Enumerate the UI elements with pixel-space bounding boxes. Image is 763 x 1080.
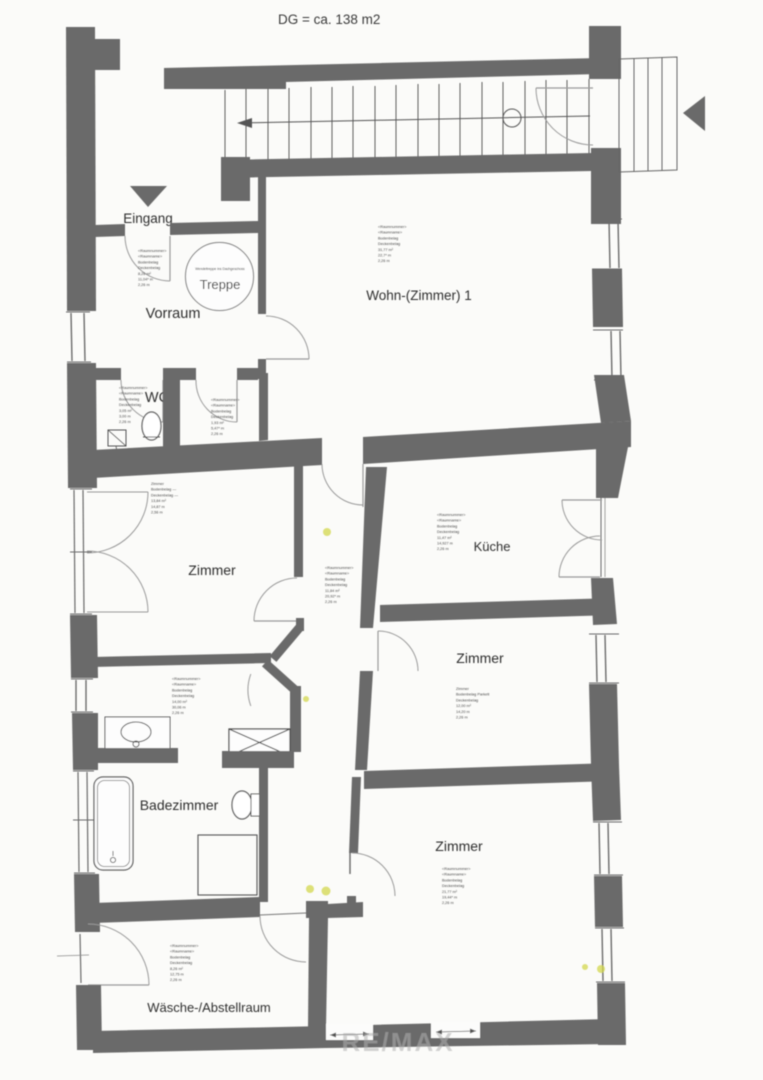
svg-text:Wohn-(Zimmer) 1: Wohn-(Zimmer) 1	[366, 288, 472, 303]
svg-text:Vorraum: Vorraum	[146, 306, 201, 322]
svg-text:Zimmer: Zimmer	[456, 650, 504, 666]
svg-text:Badezimmer: Badezimmer	[140, 797, 219, 813]
svg-text:Küche: Küche	[474, 539, 511, 554]
svg-text:Treppe: Treppe	[200, 277, 241, 292]
svg-text:Eingang: Eingang	[123, 211, 173, 226]
svg-text:RE/MAX: RE/MAX	[341, 1027, 454, 1057]
svg-text:Zimmer: Zimmer	[435, 838, 483, 854]
svg-text:DG = ca. 138 m2: DG = ca. 138 m2	[278, 12, 380, 27]
svg-text:Wendeltreppe ins Dachgeschoss: Wendeltreppe ins Dachgeschoss	[195, 267, 245, 271]
svg-text:Wäsche-/Abstellraum: Wäsche-/Abstellraum	[147, 1000, 271, 1015]
svg-text:Zimmer: Zimmer	[188, 562, 236, 578]
